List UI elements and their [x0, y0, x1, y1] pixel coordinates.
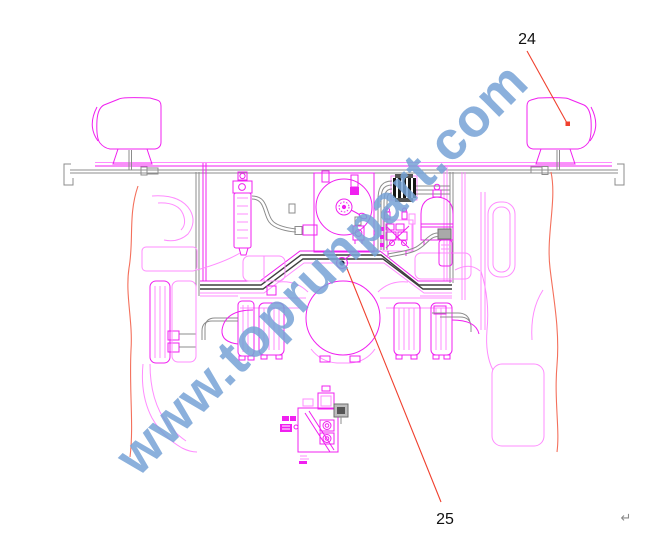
- leader-line-25: [346, 266, 441, 502]
- pipe-fitting-left: [141, 167, 158, 175]
- right-fender-wheel: [455, 202, 544, 446]
- pipe-connector: [295, 227, 302, 235]
- brake-pipes-right: [432, 306, 479, 334]
- callout-25-label: 25: [436, 511, 454, 528]
- watermark-text: www.toprunpart.com: [103, 51, 539, 487]
- leveling-valve: [280, 386, 348, 464]
- pipe-bracket-left: [64, 164, 73, 185]
- pipe-bracket-right: [615, 164, 624, 185]
- right-contour-line: [549, 172, 558, 452]
- parts-diagram: www.toprunpart.com 24 25 ↵: [0, 0, 666, 543]
- right-horn-assembly: [527, 98, 596, 170]
- left-horn-assembly: [92, 98, 161, 170]
- paragraph-return-mark: ↵: [621, 511, 632, 526]
- document-page: www.toprunpart.com 24 25 ↵: [0, 0, 666, 543]
- callout-24-label: 24: [518, 31, 536, 48]
